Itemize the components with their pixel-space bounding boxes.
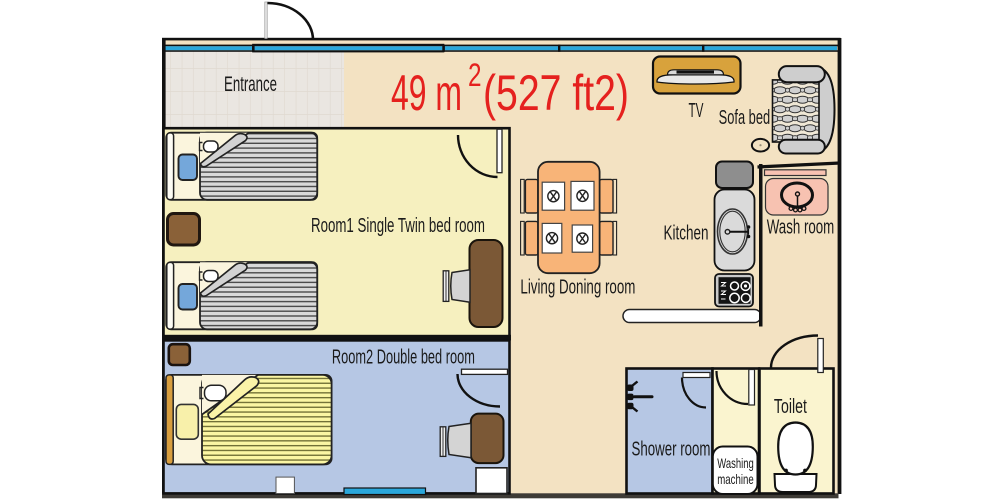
svg-text:Toilet: Toilet xyxy=(774,396,807,418)
svg-text:Room2 Double bed room: Room2 Double bed room xyxy=(332,347,475,369)
svg-text:Wash room: Wash room xyxy=(767,217,835,239)
svg-text:Entrance: Entrance xyxy=(224,73,277,96)
svg-text:2: 2 xyxy=(468,57,482,93)
svg-text:Living Doning room: Living Doning room xyxy=(520,277,635,299)
svg-text:Washing: Washing xyxy=(717,455,754,471)
svg-text:Shower room: Shower room xyxy=(632,439,711,461)
svg-text:Kitchen: Kitchen xyxy=(664,223,709,245)
svg-text:Room1 Single Twin bed room: Room1 Single Twin bed room xyxy=(311,215,485,237)
svg-text:49 m: 49 m xyxy=(391,65,462,121)
svg-text:(527 ft2): (527 ft2) xyxy=(483,65,629,121)
svg-text:Sofa bed: Sofa bed xyxy=(719,107,771,129)
svg-text:machine: machine xyxy=(717,471,754,487)
svg-text:TV: TV xyxy=(689,100,704,122)
